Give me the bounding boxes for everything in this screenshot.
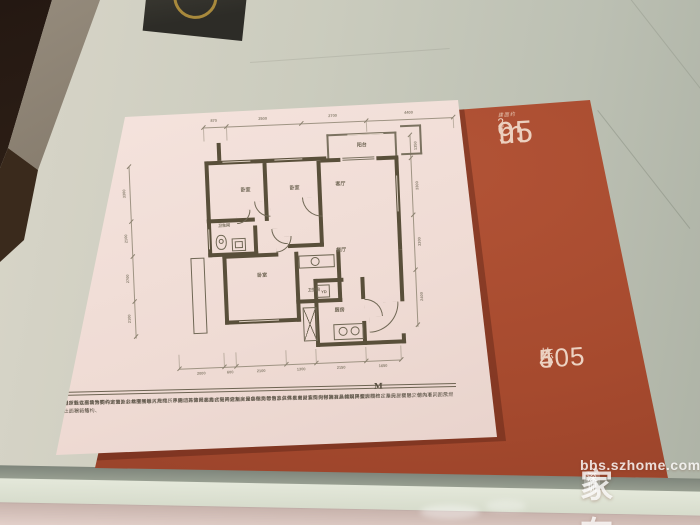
counter-seam [250,48,450,63]
wall [222,255,229,325]
entry-door-arc [368,302,399,333]
dim-ext [400,345,402,359]
dim-label: 2150 [337,365,346,370]
dim-ext [285,350,287,364]
dim-line-top [203,117,453,128]
dim-ext [178,355,180,369]
dim-line-left [129,167,137,339]
room-label-dining: 餐厅 [336,246,346,253]
watermark-site: bbs.szhome.com [580,457,700,473]
counter-seam [627,0,700,98]
dim-line-right [409,135,418,327]
dim-ext [203,129,205,142]
slider-door [342,158,374,160]
dim-label: 1350 [413,141,418,150]
dim-label: 870 [210,119,217,124]
dim-label: 2100 [127,314,132,323]
appliance-icon [303,307,318,342]
dim-label: 2100 [124,234,129,243]
dim-ext [365,347,367,361]
wall [320,158,340,163]
wall [316,339,406,347]
wall [336,250,342,302]
dim-ext [235,352,237,366]
washbasin-icon [235,241,243,248]
watermark-badge: 深圳 [584,471,600,497]
gold-ring-logo-icon [171,0,219,21]
side-platform [190,258,207,335]
wall [204,161,211,223]
door-arc [254,201,271,218]
room-label-bedroom: 卧室 [289,184,299,191]
ac-platform-wall [419,124,422,154]
dim-ext [223,353,225,367]
room-label-bath: 卫生间 [308,287,320,293]
dim-label: 2700 [328,114,337,119]
dim-ext [366,122,367,132]
divider-mark: M [374,381,383,391]
wall [296,298,342,304]
room-label-kitchen: 厨房 [335,306,345,313]
ac-platform-wall [400,124,421,127]
dim-label: 2400 [420,292,425,301]
dim-label: 3300 [122,189,127,198]
dim-label: 2700 [126,274,131,283]
reflection-smudge [486,500,526,512]
room-label-bedroom: 卧室 [257,271,267,278]
wall [217,143,222,161]
dim-label: 2500 [258,117,267,122]
wall [360,277,365,299]
balcony-wall [326,134,329,160]
dim-label: 3300 [417,237,422,246]
placard [143,0,250,41]
door-arc [302,197,323,218]
dim-ext [315,349,317,363]
wall [398,249,404,301]
wall [253,225,258,255]
dim-label: 3300 [415,181,420,190]
room-number: 405 [538,341,586,375]
reflection-smudge [420,505,480,519]
room-label-bedroom: 卧室 [240,186,250,193]
area-exponent: 2 [497,115,505,129]
dim-label: 1650 [379,364,388,369]
dim-label: 2000 [197,371,206,376]
room-label-bath: 卫生间 [218,222,230,228]
photo-scene: 95建面约m2 5栋405 870 2500 2700 4400 [0,0,700,525]
dim-label: 600 [227,370,234,375]
room-label-living: 客厅 [335,180,345,187]
dim-label: 4400 [404,110,413,115]
wall [288,243,324,249]
dim-label: 1300 [297,367,306,372]
flue-label: YD [321,289,327,294]
room-label-balcony: 阳台 [357,141,367,148]
dim-line-bottom [179,359,401,369]
window-line [347,133,383,136]
dim-label: 2100 [257,369,266,374]
floor-plan: 870 2500 2700 4400 3300 2100 2700 2100 [120,92,492,407]
dim-ext [226,128,228,141]
dim-ext [453,118,454,128]
